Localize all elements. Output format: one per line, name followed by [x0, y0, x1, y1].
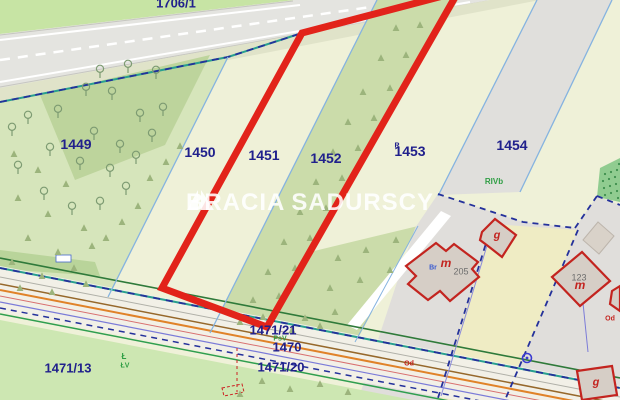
cadastral-map-canvas[interactable]: 1706/11449145014511452145314541471/13147… [0, 0, 620, 400]
watermark-text-right: SADURSCY [291, 189, 434, 217]
road-width-box [56, 255, 71, 262]
building-g-2 [577, 366, 617, 400]
watermark-logo-icon [186, 189, 216, 211]
watermark: BRACIA SADURSCY [186, 189, 434, 217]
